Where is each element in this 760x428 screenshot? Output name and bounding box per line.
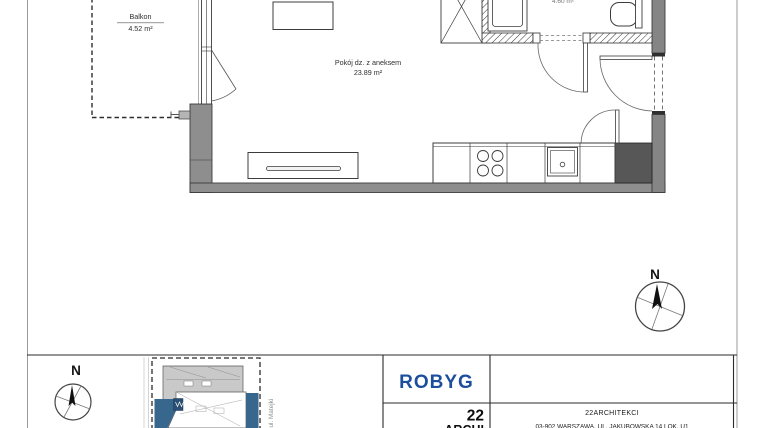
north-label: N [650, 267, 660, 282]
site-north-label: N [71, 363, 81, 378]
floor-plan: Balkon 4.52 m² [92, 0, 665, 193]
balcony-door [202, 0, 237, 104]
wall-bottom [190, 183, 665, 193]
bathroom-door [538, 43, 588, 92]
street-label: ul. Matejki [268, 399, 275, 428]
wall-right-bottom [652, 115, 665, 193]
robyg-logo: ROBYG [399, 372, 474, 393]
living-room-label: Pokój dz. z aneksem 23.89 m² [335, 58, 401, 77]
hall-door [581, 110, 619, 143]
architect-logo-archi: ARCHI [444, 423, 484, 428]
room-area: 23.89 m² [354, 68, 383, 77]
sink [548, 148, 578, 177]
tv-cabinet [248, 153, 358, 179]
wall-left [190, 104, 212, 193]
dining-table [273, 2, 333, 30]
kitchen-counter [433, 143, 615, 183]
balcony-label: Balkon 4.52 m² [117, 12, 164, 33]
north-compass: N [636, 267, 685, 331]
architect-logo: 22 ARCHI [444, 408, 484, 428]
room-name: Pokój dz. z aneksem [335, 58, 401, 67]
architect-address: 03-902 WARSZAWA, UL. JAKUBOWSKA 14 LOK. … [535, 424, 689, 428]
balcony-area: 4.52 m² [128, 24, 153, 33]
site-location-marker [174, 399, 184, 411]
floor-plan-sheet: Balkon 4.52 m² [0, 0, 760, 428]
architect-logo-22: 22 [467, 408, 484, 425]
architect-name: 22ARCHITEKCI [585, 410, 639, 417]
balcony: Balkon 4.52 m² [92, 0, 199, 118]
wardrobe [441, 0, 482, 43]
entrance-door [600, 56, 663, 111]
site-highlight-right [246, 393, 259, 428]
site-north-compass: N [55, 363, 91, 420]
wall-stub [179, 111, 190, 119]
bathroom-area-partial: 4.60 m² [552, 0, 575, 5]
site-plan: N ul. Matejki [55, 357, 275, 428]
shower [488, 0, 527, 31]
wall-right-top [652, 0, 665, 53]
balcony-name: Balkon [130, 12, 152, 21]
shaft-column [615, 143, 652, 183]
title-block: ROBYG 22 ARCHI 22ARCHITEKCI 03-902 WARSZ… [27, 355, 737, 428]
toilet [611, 0, 643, 28]
